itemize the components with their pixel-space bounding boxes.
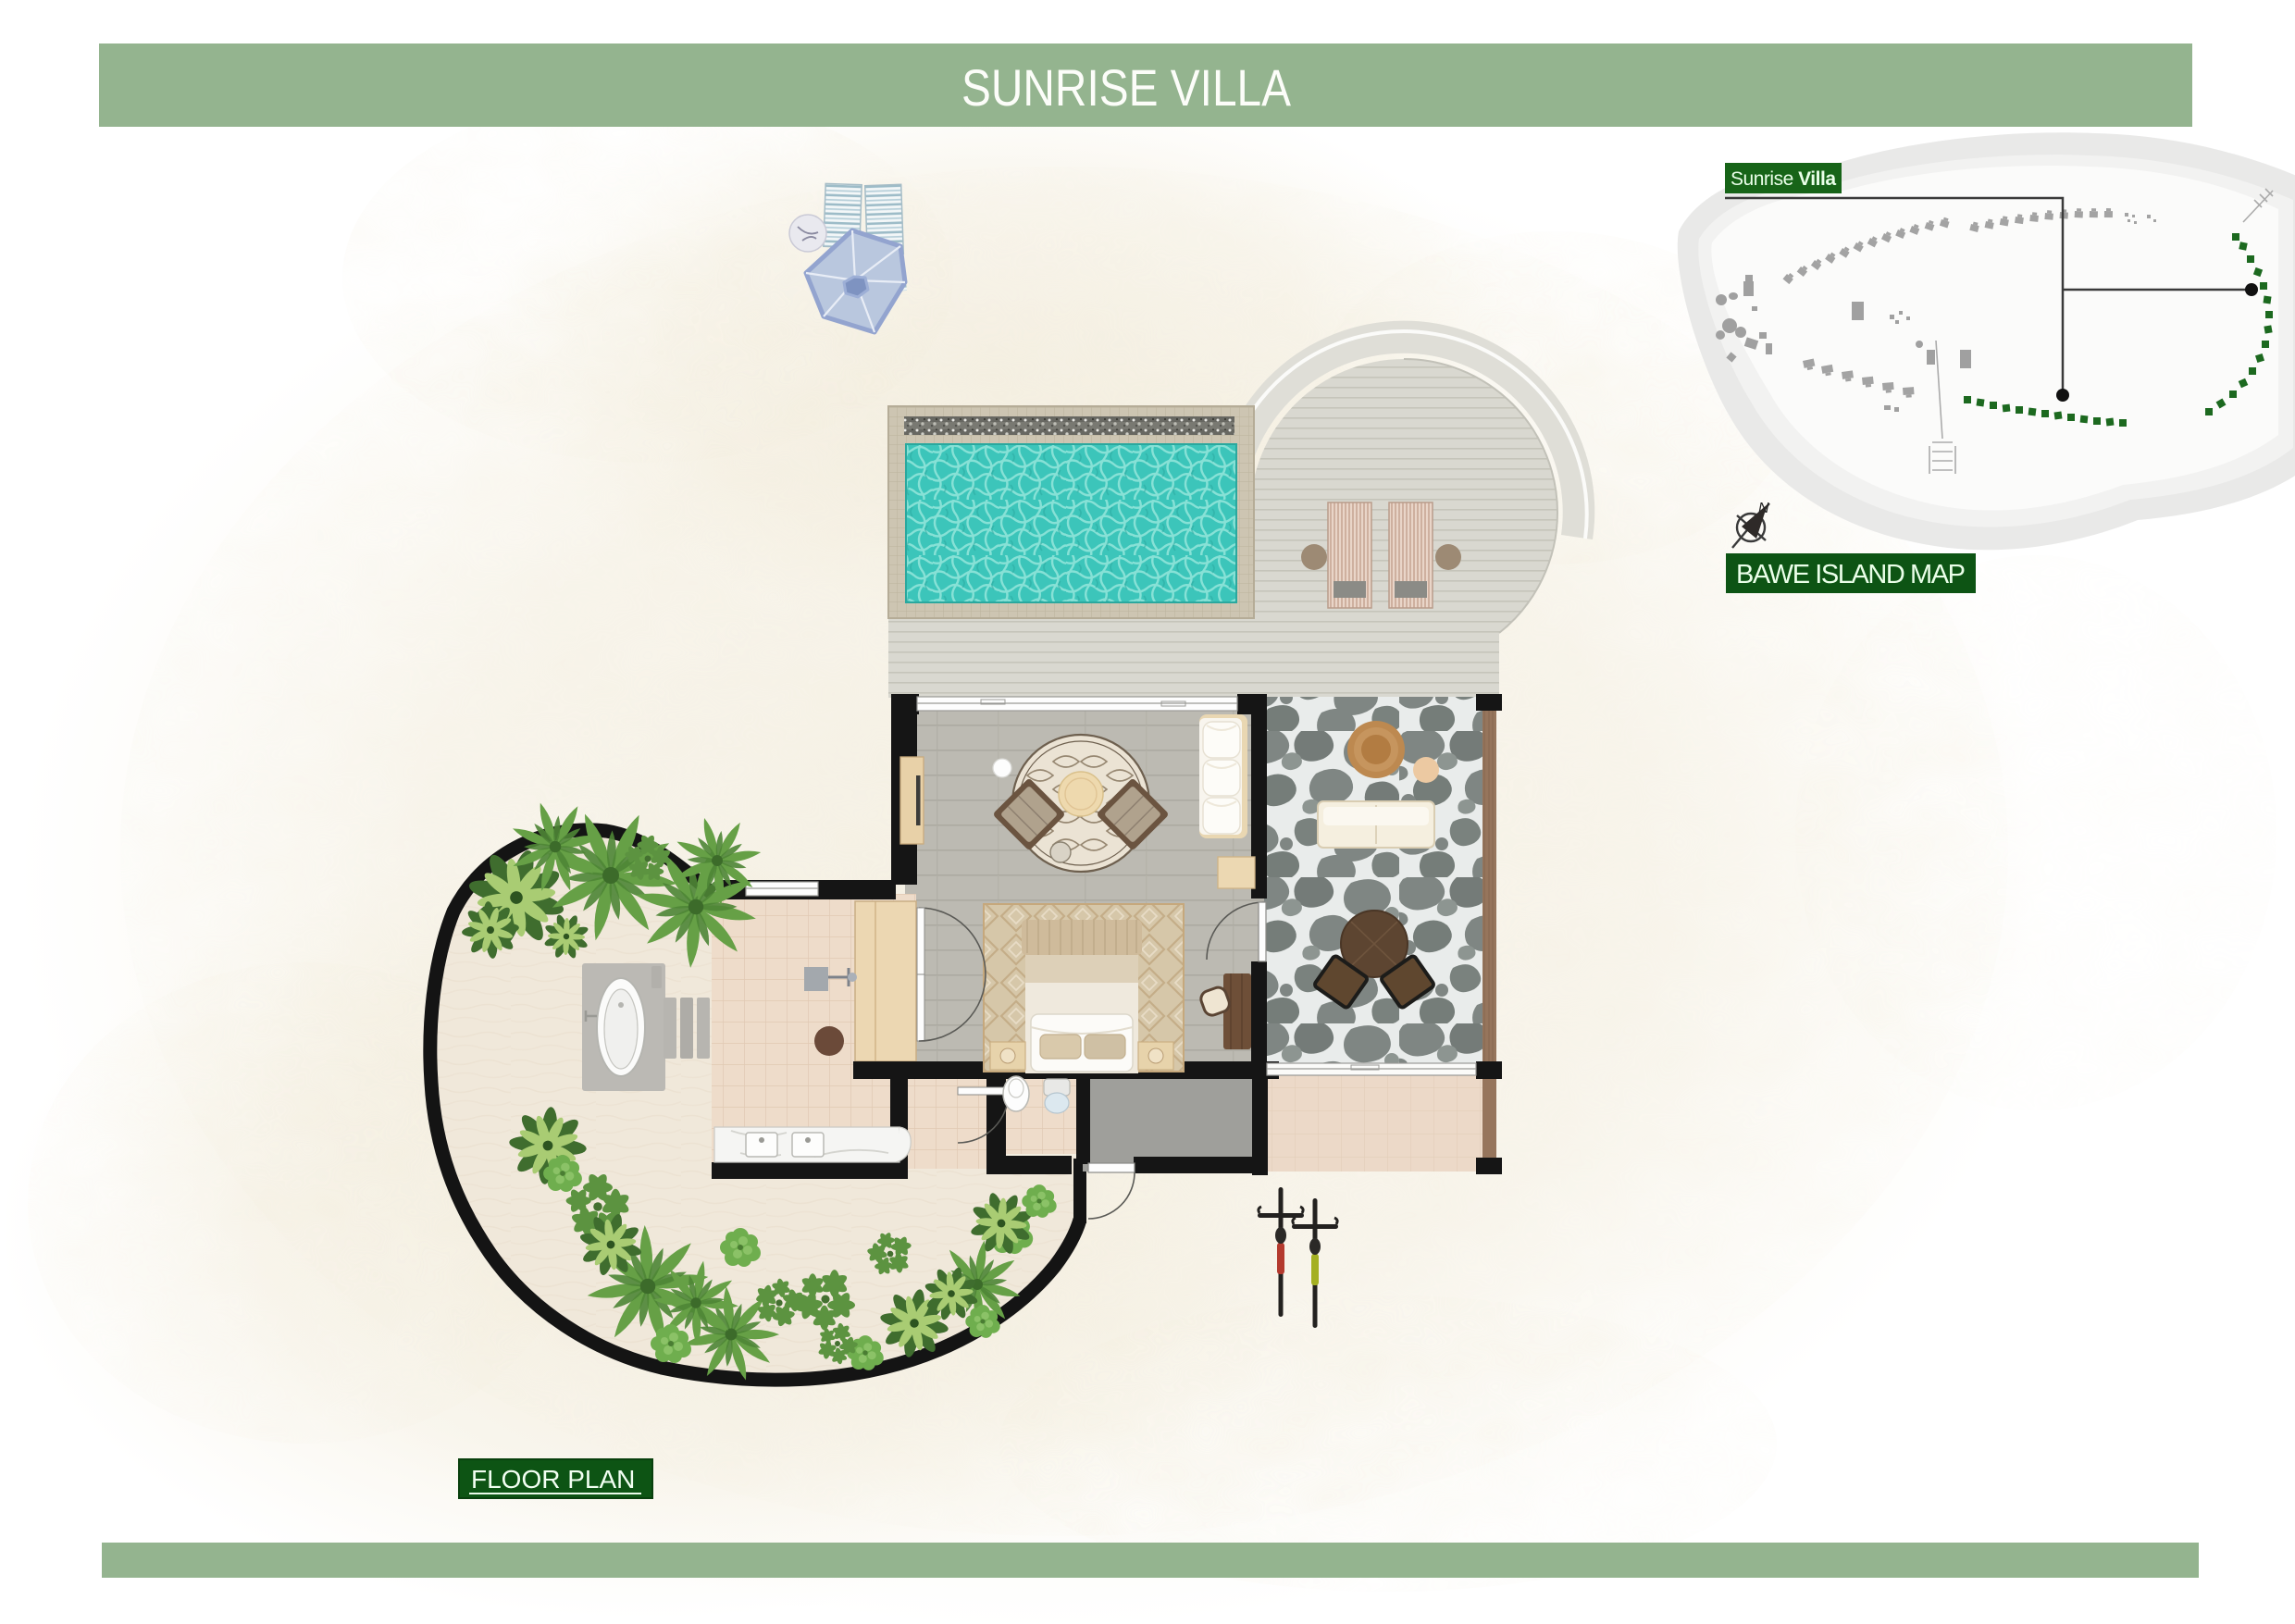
svg-text:FLOOR PLAN: FLOOR PLAN [471,1465,635,1494]
svg-text:SUNRISE VILLA: SUNRISE VILLA [961,58,1292,117]
svg-text:BAWE ISLAND MAP: BAWE ISLAND MAP [1736,560,1966,589]
svg-text:Sunrise Villa: Sunrise Villa [1731,168,1836,190]
svg-text:N: N [1758,501,1769,516]
